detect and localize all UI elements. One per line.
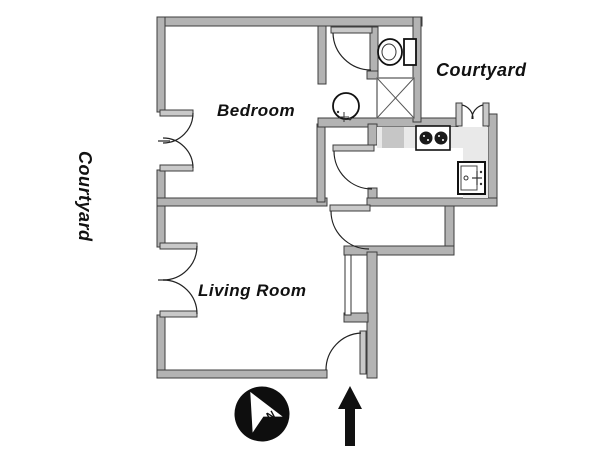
wall-kitchen-left-stub: [368, 124, 377, 145]
wall-kitchen-right: [488, 114, 497, 206]
wall-hallway-left: [317, 124, 325, 202]
wall-bedroom-right: [318, 26, 326, 84]
courtyard-door-leaf-left: [456, 103, 462, 126]
washbasin-handle-dot: [337, 111, 339, 113]
living-window-leaf-top: [160, 243, 197, 249]
living-room-label: Living Room: [198, 281, 306, 301]
wall-bottom: [157, 370, 327, 378]
wall-wc-partition: [370, 27, 378, 71]
kitchen-sink-icon: [458, 162, 485, 194]
wall-room-divider: [157, 198, 327, 206]
bathroom-door-leaf: [331, 27, 372, 33]
courtyard-door-leaf-right: [483, 103, 489, 126]
toilet-icon: [378, 39, 416, 65]
living-room-door-leaf: [330, 205, 370, 211]
courtyard-door-swing-arc: [472, 105, 483, 119]
courtyard-door-swing-arc: [462, 105, 473, 119]
compass-icon: N: [225, 377, 299, 450]
washbasin-bowl: [333, 93, 359, 119]
entry-door-leaf: [360, 331, 366, 374]
bathroom-door-swing-arc: [333, 33, 371, 70]
living-window-swing-arc: [163, 280, 197, 314]
wall-left-lower: [157, 315, 165, 378]
stove-burner: [435, 132, 448, 145]
bedroom-label: Bedroom: [217, 101, 295, 121]
sink-handle-dot: [480, 171, 482, 173]
burner-dot: [438, 135, 440, 137]
kitchen-door-swing-arc: [334, 151, 372, 189]
sink-handle-dot: [480, 183, 482, 185]
entrance-arrow-icon: [338, 386, 362, 446]
bedroom-window-leaf-bottom: [160, 165, 193, 171]
toilet-tank: [404, 39, 416, 65]
stove-icon: [416, 126, 450, 150]
living-window-swing-arc: [163, 246, 197, 280]
east-window: [345, 255, 351, 315]
living-window-leaf-bottom: [160, 311, 197, 317]
burner-dot: [423, 135, 425, 137]
appliance-block: [382, 127, 404, 148]
wall-left-middle: [157, 170, 165, 247]
burner-dot: [427, 139, 429, 141]
wall-left-upper: [157, 17, 165, 112]
wall-closet-bottom: [344, 246, 454, 255]
bedroom-window-leaf-top: [160, 110, 193, 116]
burner-dot: [442, 139, 444, 141]
entry-door-swing-arc: [326, 333, 361, 370]
floor-plan: N Bedroom Living Room Courtyard Courtyar…: [0, 0, 600, 450]
courtyard-right-label: Courtyard: [436, 60, 527, 81]
kitchen-door-leaf: [333, 145, 374, 151]
stove-burner: [420, 132, 433, 145]
wall-kitchen-bottom: [367, 198, 497, 206]
living-room-door-swing-arc: [331, 211, 369, 249]
shower-icon: [377, 78, 414, 118]
wall-closet-right: [445, 206, 454, 248]
washbasin-handle-dot: [349, 118, 352, 121]
wall-top: [157, 17, 422, 26]
courtyard-left-label: Courtyard: [74, 151, 95, 242]
